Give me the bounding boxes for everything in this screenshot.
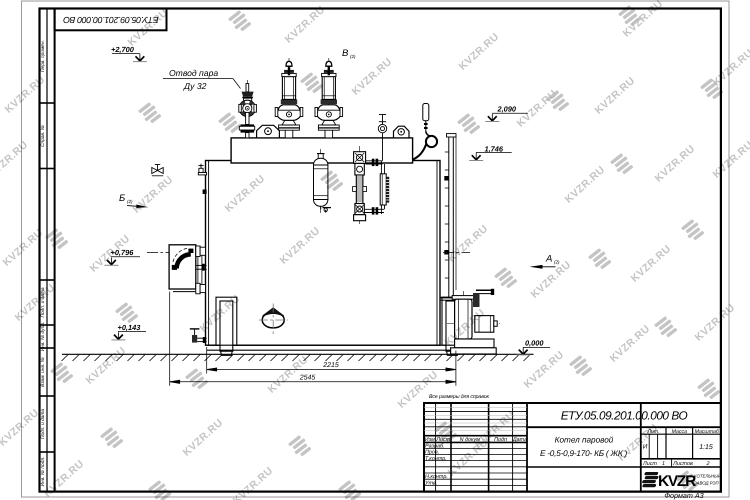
svg-text:Отвод пара: Отвод пара (169, 68, 218, 78)
svg-text:Пров.: Пров. (425, 450, 439, 456)
svg-text:Масштаб: Масштаб (695, 429, 720, 435)
svg-text:2215: 2215 (322, 362, 339, 369)
svg-text:Утв.: Утв. (424, 481, 437, 487)
svg-text:Перв. примен.: Перв. примен. (40, 40, 46, 72)
svg-text:2,090: 2,090 (497, 105, 517, 114)
svg-text:(2): (2) (350, 54, 356, 59)
svg-text:КОТЕЛЬНЫЙ: КОТЕЛЬНЫЙ (694, 474, 722, 479)
svg-text:Формат А3: Формат А3 (664, 491, 703, 500)
svg-text:Изм: Изм (425, 437, 435, 443)
svg-text:Справ. №: Справ. № (40, 124, 46, 147)
svg-text:0,000: 0,000 (525, 339, 544, 348)
svg-text:2545: 2545 (299, 374, 316, 381)
svg-text:Т.контр.: Т.контр. (425, 456, 447, 462)
svg-text:Котел паровой: Котел паровой (555, 436, 614, 445)
svg-text:Все размеры для справок: Все размеры для справок (429, 394, 489, 400)
svg-text:Листов: Листов (672, 461, 693, 467)
svg-text:А: А (545, 254, 552, 265)
svg-text:Подп. и дата: Подп. и дата (40, 409, 46, 439)
svg-text:ЕТУ.05.09.201.00.000 ВО: ЕТУ.05.09.201.00.000 ВО (561, 409, 688, 423)
svg-text:2: 2 (706, 461, 710, 467)
svg-text:1:15: 1:15 (699, 444, 713, 451)
svg-text:Подп: Подп (494, 437, 507, 443)
svg-text:Е -0,5-0,9-170- КБ ( ЖК ): Е -0,5-0,9-170- КБ ( ЖК ) (540, 449, 628, 458)
svg-text:Инв. № подл.: Инв. № подл. (40, 457, 46, 487)
svg-text:В: В (342, 48, 349, 59)
svg-text:1: 1 (662, 461, 665, 467)
svg-text:Б: Б (119, 193, 125, 204)
svg-text:Ду 32: Ду 32 (183, 81, 207, 91)
svg-text:+0,143: +0,143 (118, 323, 142, 332)
svg-text:Н.контр.: Н.контр. (425, 474, 448, 480)
svg-text:Дата: Дата (512, 437, 527, 443)
svg-text:(2): (2) (127, 199, 133, 204)
svg-text:Инв. № дубл.: Инв. № дубл. (40, 322, 46, 352)
svg-text:Масса: Масса (672, 429, 687, 435)
svg-text:Лист: Лист (642, 461, 657, 467)
svg-text:Взам. инв. №: Взам. инв. № (40, 356, 46, 386)
